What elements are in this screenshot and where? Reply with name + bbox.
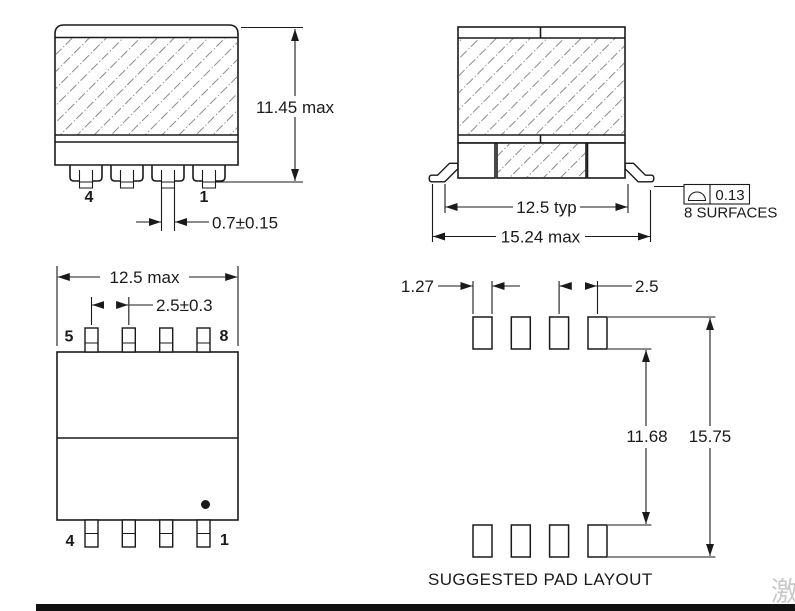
side-view: 0.13 8 SURFACES 12.5 typ 15.24 max	[429, 27, 777, 247]
pin-7	[160, 328, 173, 352]
pad	[550, 317, 569, 349]
dim-span-inner-label: 11.68	[626, 427, 667, 446]
mechanical-drawing-canvas: 4 1 11.45 max 0.7±0.15	[0, 0, 795, 611]
watermark-text: 激	[771, 577, 795, 607]
side-post-left	[458, 143, 495, 178]
front-standoffs-and-leads	[70, 165, 225, 188]
pin-5	[85, 328, 98, 352]
top-body-outline	[57, 352, 238, 520]
front-pin4-label: 4	[85, 189, 94, 206]
dim-pad-pitch-label: 2.5	[635, 277, 659, 296]
dim-lead-width-label: 0.7±0.15	[212, 214, 278, 233]
pad-layout-caption: SUGGESTED PAD LAYOUT	[428, 570, 653, 589]
side-hatch-fill	[459, 38, 624, 135]
page-edge-bar	[36, 604, 795, 611]
pad-top-row	[473, 317, 607, 349]
profile-surfaces-note: 8 SURFACES	[684, 205, 777, 222]
dim-height-label: 11.45 max	[256, 98, 335, 117]
top-pin8-label: 8	[220, 328, 229, 345]
side-post-right	[588, 143, 626, 178]
pad	[511, 317, 530, 349]
top-view: 5 8 4 1 12.5 max 2.5±0.3	[57, 266, 238, 550]
dim-lead-span-label: 12.5 typ	[516, 198, 577, 217]
dim-pad-width: 1.27	[401, 277, 520, 314]
dim-pad-width-extension-lines	[473, 281, 492, 314]
pad	[511, 525, 530, 557]
dim-pad-pitch: 2.5	[559, 277, 659, 314]
pad	[473, 317, 492, 349]
dim-body-width-label: 12.5 max	[110, 268, 180, 287]
pad	[588, 317, 607, 349]
pad	[473, 525, 492, 557]
pad	[550, 525, 569, 557]
front-hatch-fill	[56, 38, 237, 136]
top-row-pins	[85, 328, 210, 352]
side-lead-left	[429, 163, 458, 182]
top-pin1-label: 1	[220, 532, 229, 549]
dim-span-outer-label: 15.75	[689, 427, 732, 446]
front-pin1-label: 1	[200, 189, 209, 206]
surface-profile-icon	[689, 192, 706, 201]
dim-lead-width-extension-lines	[162, 188, 175, 231]
profile-tolerance-value: 0.13	[715, 187, 744, 204]
dim-pin-pitch-extension-lines	[92, 297, 129, 325]
side-center-block-hatch	[498, 144, 585, 177]
dim-pin-pitch-label: 2.5±0.3	[156, 296, 213, 315]
pad-layout-view: 1.27 2.5 11.68 15.75 SUGGESTED PAD LAYOU…	[401, 277, 731, 589]
pin-6	[122, 328, 135, 352]
datasheet-package-drawing: 4 1 11.45 max 0.7±0.15	[0, 0, 795, 611]
pad	[588, 525, 607, 557]
lead-outline	[80, 170, 216, 188]
pin-8	[197, 328, 210, 352]
front-view: 4 1 11.45 max 0.7±0.15	[55, 25, 335, 233]
dim-pad-width-label: 1.27	[401, 277, 434, 296]
top-pin4-label: 4	[66, 533, 75, 550]
bump-outline	[70, 165, 225, 181]
dim-lead-span: 12.5 typ	[445, 184, 628, 217]
profile-tolerance-frame: 0.13 8 SURFACES	[654, 185, 777, 222]
dim-pin-pitch: 2.5±0.3	[92, 296, 213, 325]
dim-span-inner: 11.68	[608, 349, 668, 525]
pin1-indicator-dot	[201, 500, 210, 509]
dim-overall-label: 15.24 max	[501, 228, 581, 247]
top-pin5-label: 5	[65, 329, 74, 346]
pad-bottom-row	[473, 525, 607, 557]
bottom-row-pins	[85, 520, 210, 547]
side-lead-right	[625, 163, 654, 182]
